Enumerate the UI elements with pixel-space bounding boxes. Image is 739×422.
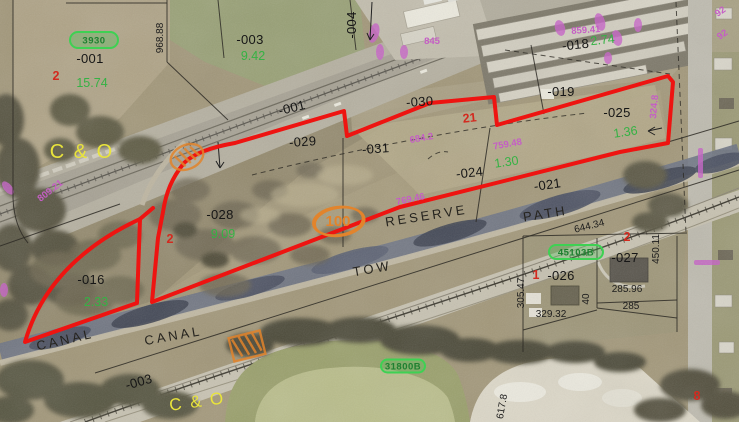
green-oval-badge: 31800B: [381, 360, 425, 373]
dimension-label-magenta: 859.41: [571, 24, 601, 37]
parcel-id-label: -016: [77, 272, 104, 287]
map-canvas[interactable]: 393045103B31800B100 -001-003-004-001-030…: [0, 0, 739, 422]
dimension-label: 285.96: [612, 284, 643, 295]
green-oval-badge: 3930: [70, 32, 118, 48]
lot-number-label: 1: [533, 268, 540, 282]
acreage-label: 2.33: [84, 295, 108, 309]
parcel-id-label: -018: [561, 36, 590, 54]
parcel-id-label: -001: [76, 51, 103, 66]
dimension-label: 968.88: [155, 22, 166, 53]
terrain-grain: [0, 0, 739, 422]
railroad-name-label: C & O: [50, 141, 114, 163]
parcel-id-label: -027: [611, 250, 638, 265]
lot-number-label: 2: [624, 230, 631, 244]
parcel-id-label: -029: [289, 133, 317, 150]
dimension-label: 329.32: [536, 309, 567, 320]
svg-text:3930: 3930: [82, 36, 105, 47]
svg-text:100: 100: [325, 213, 350, 230]
svg-text:45103B: 45103B: [558, 248, 594, 259]
parcel-id-label: -026: [547, 268, 574, 283]
parcel-id-label: -019: [547, 84, 574, 99]
acreage-label: 9.42: [241, 49, 265, 63]
map-viewport[interactable]: 393045103B31800B100 -001-003-004-001-030…: [0, 0, 739, 422]
parcel-id-label: -031: [362, 140, 390, 157]
dimension-label-magenta: 324.8: [648, 94, 661, 119]
parcel-id-label: -003: [236, 32, 263, 47]
parcel-id-label: -004: [344, 11, 359, 38]
lot-number-label: 21: [462, 110, 477, 125]
dimension-label: 305.47: [516, 277, 527, 308]
parcel-id-label: -028: [206, 207, 233, 222]
parcel-id-label: -030: [406, 93, 434, 110]
svg-text:31800B: 31800B: [385, 362, 421, 373]
dimension-label: 450.11: [651, 234, 662, 264]
lot-number-label: 2: [167, 232, 174, 246]
lot-number-label: 2: [53, 69, 60, 83]
lot-number-label: 8: [694, 389, 701, 403]
parcel-id-label: -024: [455, 164, 484, 182]
green-oval-badge: 45103B: [549, 245, 603, 259]
acreage-label: 9.09: [211, 227, 235, 241]
dimension-label: 40: [581, 293, 592, 305]
parcel-id-label: -025: [603, 105, 630, 120]
dimension-label: 285: [623, 301, 640, 312]
acreage-label: 15.74: [76, 76, 107, 90]
dimension-label-magenta: 845: [424, 36, 441, 47]
